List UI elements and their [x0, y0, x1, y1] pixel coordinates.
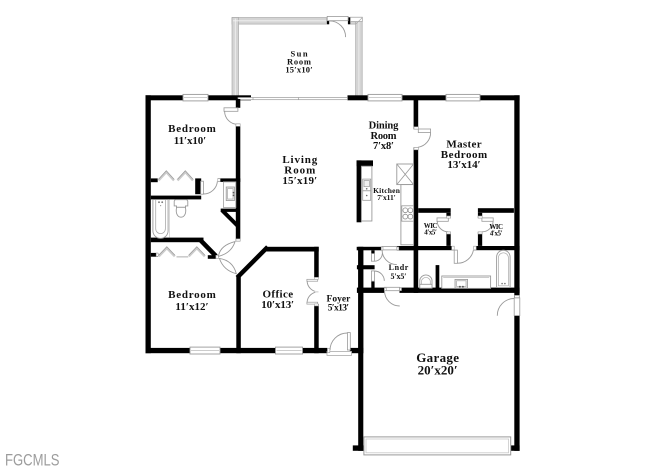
svg-text:13′x14′: 13′x14′	[447, 159, 480, 171]
svg-text:Lndr: Lndr	[389, 263, 409, 272]
svg-text:10′x13′: 10′x13′	[261, 299, 294, 311]
svg-text:15′x19′: 15′x19′	[282, 175, 317, 187]
svg-text:Bedroom: Bedroom	[168, 123, 216, 135]
svg-text:11′x12′: 11′x12′	[175, 301, 208, 313]
svg-text:20′x20′: 20′x20′	[418, 363, 458, 378]
svg-text:FGCMLS: FGCMLS	[5, 452, 60, 470]
svg-text:11′x10′: 11′x10′	[174, 135, 206, 147]
svg-text:7′x11′: 7′x11′	[377, 193, 396, 202]
svg-text:Bedroom: Bedroom	[168, 289, 216, 301]
svg-text:4′x5′: 4′x5′	[490, 229, 503, 237]
svg-text:5′x5′: 5′x5′	[391, 272, 407, 281]
svg-text:7′x8′: 7′x8′	[373, 141, 394, 152]
svg-text:15′x10′: 15′x10′	[285, 65, 312, 75]
svg-text:4′x5′: 4′x5′	[424, 228, 437, 236]
svg-text:5′x13′: 5′x13′	[328, 303, 350, 313]
